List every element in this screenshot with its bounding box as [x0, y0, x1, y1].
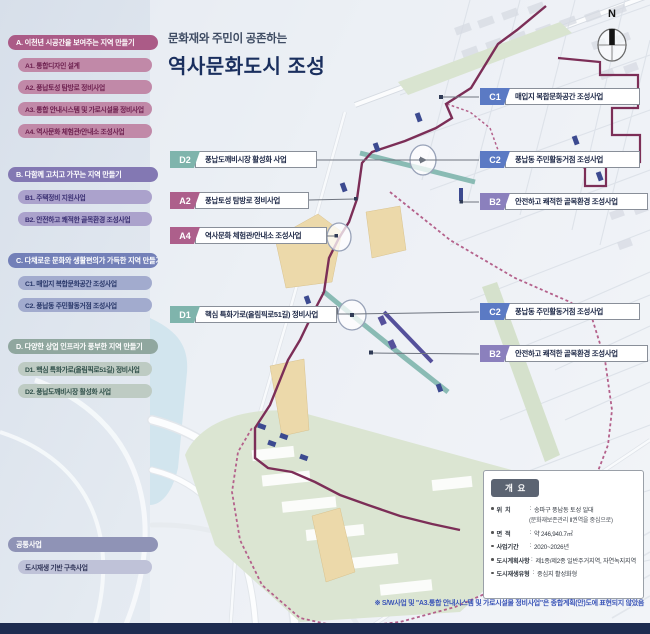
callout-b2-upper: B2 안전하고 쾌적한 골목환경 조성사업: [480, 193, 648, 210]
title-block: 문화재와 주민이 공존하는 역사문화도시 조성: [168, 30, 325, 79]
callout-c1: C1 매입지 복합문화공간 조성사업: [480, 88, 640, 105]
callout-c2-label: 풍납동 주민활동거점 조성사업: [505, 151, 640, 168]
masterplan-poster: 문화재와 주민이 공존하는 역사문화도시 조성 N A. 이천년 시공간을 보여…: [0, 0, 650, 634]
sidebar-section-c: C. 다채로운 문화와 생활편의가 가득한 지역 만들기 C1. 매입지 복합문…: [8, 253, 158, 312]
section-c-item: C2. 풍납동 주민활동거점 조성사업: [18, 298, 152, 312]
section-c-item: C1. 매입지 복합문화공간 조성사업: [18, 276, 152, 290]
overview-title: 개 요: [491, 479, 539, 497]
bottom-bar: [0, 623, 650, 634]
callout-b2-lower: B2 안전하고 쾌적한 골목환경 조성사업: [480, 345, 648, 362]
callout-a2: A2 풍납토성 탐방로 정비사업: [170, 192, 309, 209]
bullet-icon: [491, 558, 494, 561]
compass-icon: [597, 29, 627, 61]
overview-row-type: 도시재생유형 : 중심지 활성화형: [491, 569, 636, 578]
section-b-item: B1. 주택정비 지원사업: [18, 190, 152, 204]
callout-b2-label: 안전하고 쾌적한 골목환경 조성사업: [505, 193, 648, 210]
section-a-item: A4. 역사문화 체험관/안내소 조성사업: [18, 124, 152, 138]
sidebar-section-common: 공통사업 도시재생 기반 구축사업: [8, 537, 158, 574]
poster-subtitle: 문화재와 주민이 공존하는: [168, 30, 325, 46]
poster-title: 역사문화도시 조성: [168, 50, 325, 79]
section-d-item: D1. 핵심 특화가로(올림픽로51길) 정비사업: [18, 362, 152, 376]
callout-d2: D2 풍납도깨비시장 활성화 사업: [170, 151, 317, 168]
overview-row-period: 사업기간 : 2020~2026년: [491, 542, 636, 551]
sidebar-section-a: A. 이천년 시공간을 보여주는 지역 만들기 A1. 통합디자인 설계 A2.…: [8, 35, 158, 138]
section-d-header: D. 다양한 상업 인프라가 풍부한 지역 만들기: [8, 339, 158, 354]
callout-a4-label: 역사문화 체험관/안내소 조성사업: [195, 227, 327, 244]
overview-row-area: 면 적 : 약 246,940.7㎡: [491, 529, 636, 538]
sidebar-section-b: B. 다함께 고치고 가꾸는 지역 만들기 B1. 주택정비 지원사업 B2. …: [8, 167, 158, 226]
callout-c2-lower: C2 풍납동 주민활동거점 조성사업: [480, 303, 640, 320]
footnote: ※ S/W사업 및 "A3.통합 안내시스템 및 가로시설물 정비사업"은 종합…: [375, 598, 644, 608]
callout-c2-label: 풍납동 주민활동거점 조성사업: [505, 303, 640, 320]
callout-b2-label: 안전하고 쾌적한 골목환경 조성사업: [505, 345, 648, 362]
section-d-item: D2. 풍납도깨비시장 활성화 사업: [18, 384, 152, 398]
overview-row-zoning: 도시계획사항 : 제1종/제2종 일반주거지역, 자연녹지지역: [491, 556, 636, 565]
overview-box: 개 요 위 치 : 송파구 풍납동 토성 일대 (문화재보존관리 Ⅱ권역을 중심…: [483, 470, 644, 599]
bullet-icon: [491, 507, 494, 510]
section-a-header: A. 이천년 시공간을 보여주는 지역 만들기: [8, 35, 158, 50]
section-a-item: A1. 통합디자인 설계: [18, 58, 152, 72]
overview-row-location: 위 치 : 송파구 풍납동 토성 일대: [491, 505, 636, 514]
section-b-item: B2. 안전하고 쾌적한 골목환경 조성사업: [18, 212, 152, 226]
callout-c2-upper: C2 풍납동 주민활동거점 조성사업: [480, 151, 640, 168]
section-a-item: A3. 통합 안내시스템 및 가로시설물 정비사업: [18, 102, 152, 116]
callout-d1-label: 핵심 특화가로(올림픽로51길) 정비사업: [195, 306, 337, 323]
sidebar-section-d: D. 다양한 상업 인프라가 풍부한 지역 만들기 D1. 핵심 특화가로(올림…: [8, 339, 158, 398]
section-b-header: B. 다함께 고치고 가꾸는 지역 만들기: [8, 167, 158, 182]
bullet-icon: [491, 545, 494, 548]
callout-c1-label: 매입지 복합문화공간 조성사업: [505, 88, 640, 105]
callout-a4: A4 역사문화 체험관/안내소 조성사업: [170, 227, 327, 244]
bullet-icon: [491, 531, 494, 534]
callout-a2-label: 풍납토성 탐방로 정비사업: [195, 192, 309, 209]
overview-location-note: (문화재보존관리 Ⅱ권역을 중심으로): [529, 515, 636, 524]
callout-d1: D1 핵심 특화가로(올림픽로51길) 정비사업: [170, 306, 337, 323]
section-a-item: A2. 풍납토성 탐방로 정비사업: [18, 80, 152, 94]
background-swoosh: [0, 380, 145, 634]
common-section-item: 도시재생 기반 구축사업: [18, 560, 152, 574]
compass-north-label: N: [604, 8, 620, 20]
bullet-icon: [491, 572, 494, 575]
section-c-header: C. 다채로운 문화와 생활편의가 가득한 지역 만들기: [8, 253, 158, 268]
common-section-header: 공통사업: [8, 537, 158, 552]
callout-d2-label: 풍납도깨비시장 활성화 사업: [195, 151, 317, 168]
